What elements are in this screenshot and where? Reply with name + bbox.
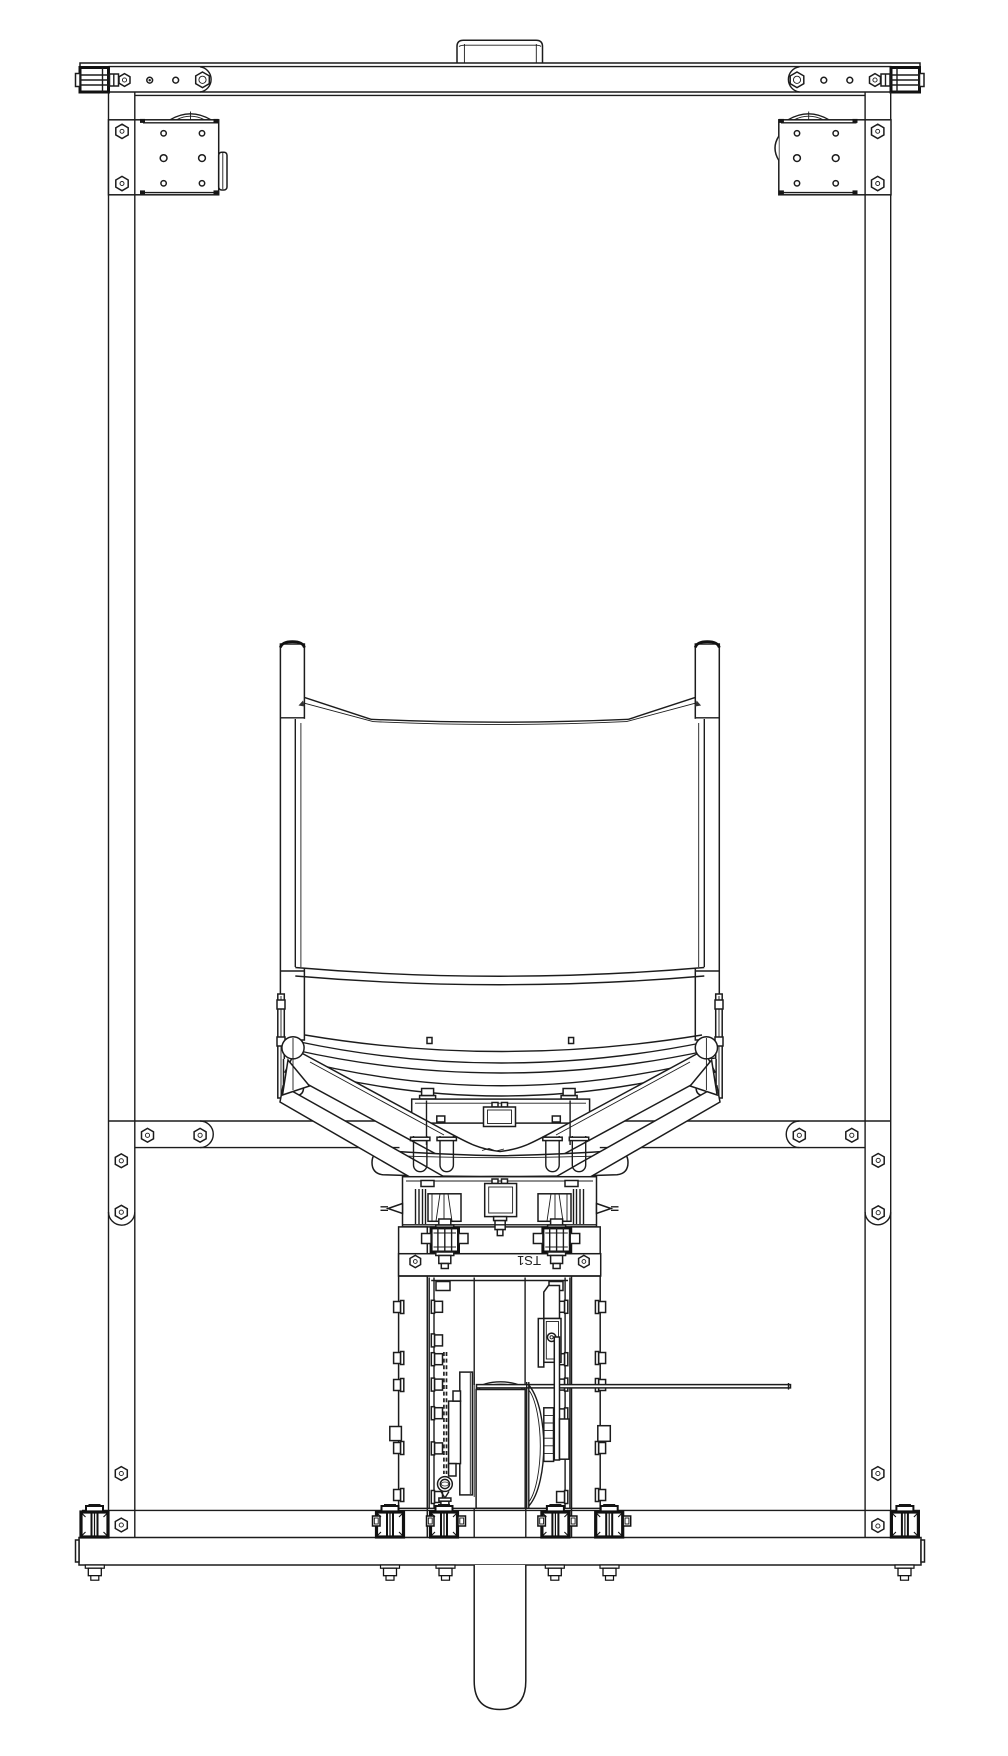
svg-text:TS1: TS1 [517,1253,541,1268]
